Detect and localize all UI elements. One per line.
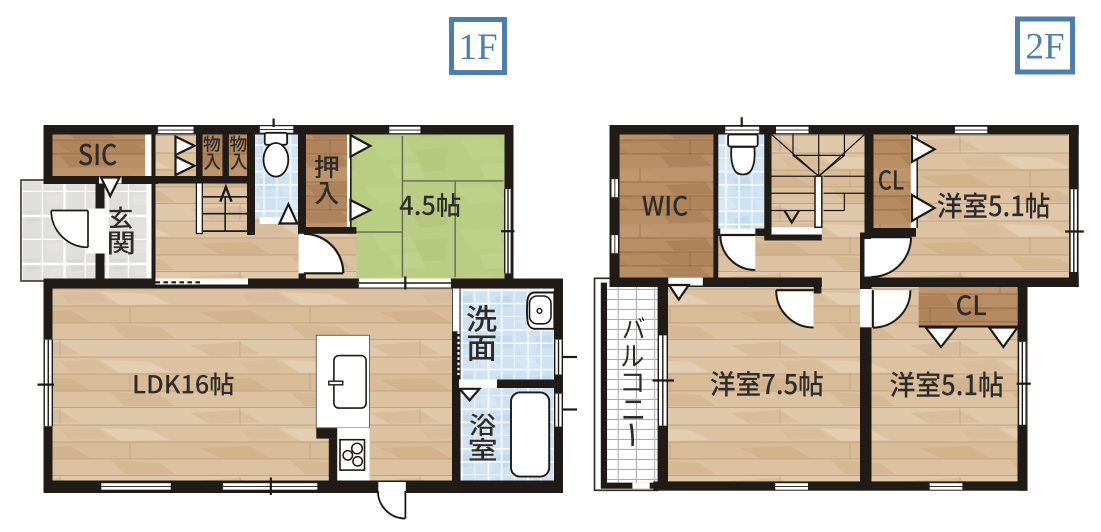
svg-text:2F: 2F [1025, 27, 1064, 68]
svg-text:1F: 1F [458, 27, 497, 68]
